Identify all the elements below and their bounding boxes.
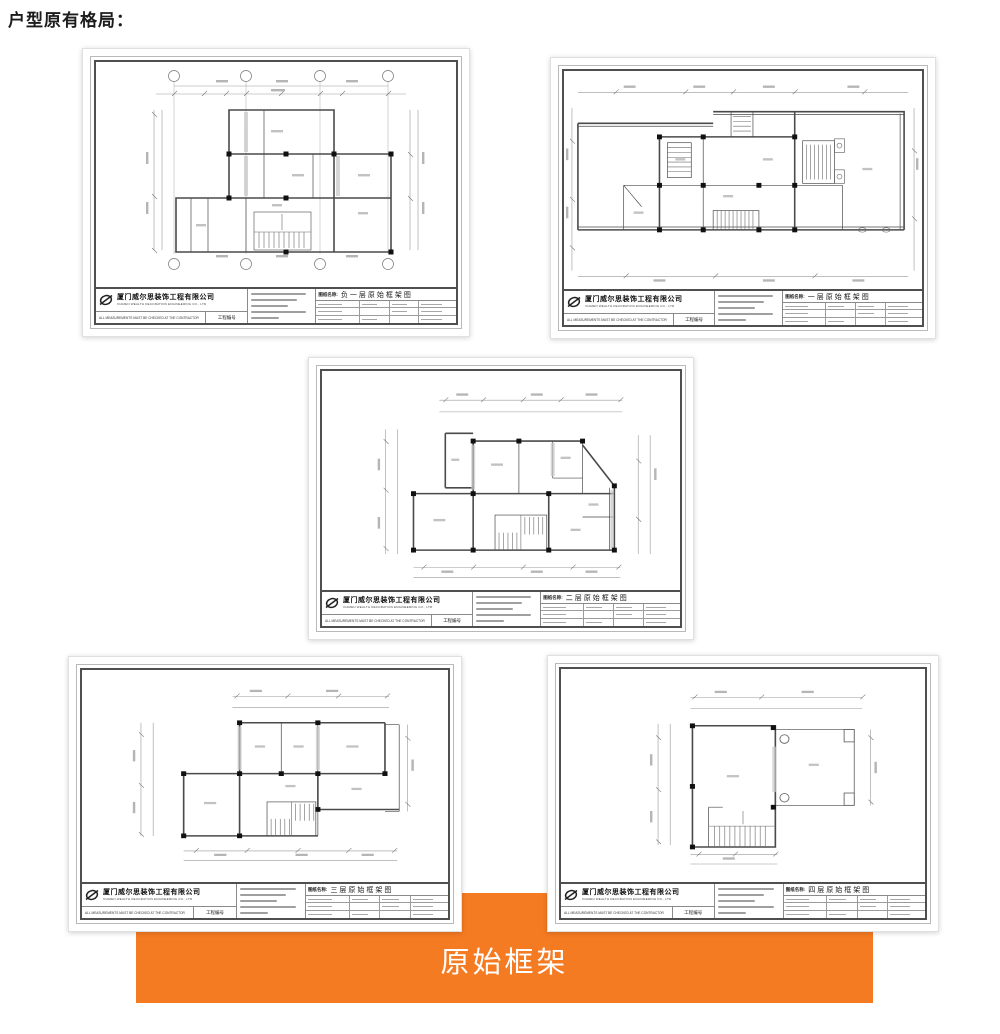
- project-no-cell: 工程编号: [205, 312, 247, 323]
- stair: [709, 811, 776, 847]
- wall-hatch: [772, 747, 776, 792]
- floorplan-drawing-floor2: [322, 371, 680, 590]
- columns: [411, 439, 617, 553]
- columns: [657, 134, 797, 232]
- floorplan-sheet-basement[interactable]: 厦门威尔思装饰工程有限公司 XIAMEN WEALTH DECORATION E…: [82, 48, 470, 337]
- banner-label: 原始框架: [440, 939, 568, 981]
- dimension-text-marks: [650, 691, 877, 860]
- drawing-title: 四层原始框架图: [808, 885, 871, 895]
- plan-svg: [561, 669, 925, 882]
- floorplan-sheet-floor4[interactable]: 厦门威尔思装饰工程有限公司 XIAMEN WEALTH DECORATION E…: [547, 655, 939, 932]
- floorplan-drawing-floor4: [561, 669, 925, 882]
- title-block-grid: [316, 301, 456, 323]
- company-logo-icon: [567, 296, 581, 308]
- floorplan-sheet-floor1[interactable]: 厦门威尔思装饰工程有限公司 XIAMEN WEALTH DECORATION E…: [550, 57, 936, 339]
- floorplan-drawing-basement: [96, 62, 456, 287]
- plan-svg: [96, 62, 456, 287]
- stair: [254, 212, 311, 250]
- dimension-lines: [656, 695, 873, 864]
- sheet-inner-frame: 厦门威尔思装饰工程有限公司 XIAMEN WEALTH DECORATION E…: [94, 60, 458, 325]
- stair: [267, 802, 316, 836]
- axis-grid: [174, 82, 388, 254]
- dimension-text-marks: [133, 690, 414, 856]
- dimension-text-marks: [566, 86, 918, 282]
- company-logo-icon: [85, 889, 99, 901]
- drawing-title: 一层原始框架图: [808, 292, 871, 302]
- drawing-title: 二层原始框架图: [566, 593, 629, 603]
- measurement-note: ALL MEASUREMENTS MUST BE CHECKED AT THE …: [96, 312, 205, 323]
- entry-steps: [731, 112, 753, 137]
- company-name-en: XIAMEN WEALTH DECORATION ENGINEERING CO.…: [117, 302, 215, 306]
- dimension-lines: [152, 86, 418, 253]
- sheet-outer-frame: 厦门威尔思装饰工程有限公司 XIAMEN WEALTH DECORATION E…: [90, 56, 462, 329]
- company-logo-icon: [99, 294, 113, 306]
- columns: [181, 720, 387, 838]
- plan-svg: [82, 670, 448, 882]
- floorplan-sheet-floor3[interactable]: 厦门威尔思装饰工程有限公司 XIAMEN WEALTH DECORATION E…: [68, 656, 462, 932]
- company-logo-icon: [564, 889, 578, 901]
- title-block: 厦门威尔思装饰工程有限公司 XIAMEN WEALTH DECORATION E…: [96, 287, 456, 323]
- room-labels: [634, 158, 873, 214]
- dimension-text-marks: [146, 80, 424, 257]
- stair: [495, 515, 547, 550]
- title-block: 厦门威尔思装饰工程有限公司 XIAMEN WEALTH DECORATION E…: [322, 590, 680, 626]
- columns: [690, 723, 776, 849]
- columns: [227, 152, 394, 255]
- company-name-cn: 厦门威尔思装饰工程有限公司: [117, 294, 215, 302]
- floorplan-drawing-floor3: [82, 670, 448, 882]
- drawing-title: 三层原始框架图: [330, 885, 393, 895]
- plan-svg: [564, 71, 922, 289]
- drawing-name-label: 图纸名称:: [318, 292, 338, 298]
- axis-bubbles: [169, 71, 394, 270]
- notes-column: [248, 289, 316, 323]
- plan-svg: [322, 371, 680, 590]
- section-heading: 户型原有格局：: [8, 6, 134, 31]
- title-block: 厦门威尔思装饰工程有限公司 XIAMEN WEALTH DECORATION E…: [82, 882, 448, 918]
- drawing-title: 负一层原始框架图: [341, 290, 413, 300]
- title-block: 厦门威尔思装饰工程有限公司 XIAMEN WEALTH DECORATION E…: [564, 289, 922, 325]
- terrace-features: [780, 730, 854, 806]
- walls: [413, 433, 614, 550]
- wall-hatch: [238, 727, 320, 770]
- walls: [176, 110, 391, 252]
- floorplan-drawing-floor1: [564, 71, 922, 289]
- stair-right: [803, 139, 845, 184]
- dimension-lines: [570, 89, 917, 278]
- floorplan-sheet-floor2[interactable]: 厦门威尔思装饰工程有限公司 XIAMEN WEALTH DECORATION E…: [308, 357, 694, 640]
- title-block: 厦门威尔思装饰工程有限公司 XIAMEN WEALTH DECORATION E…: [561, 882, 925, 918]
- article-section: 户型原有格局： 原始框架: [0, 0, 1000, 1034]
- company-logo-icon: [325, 597, 339, 609]
